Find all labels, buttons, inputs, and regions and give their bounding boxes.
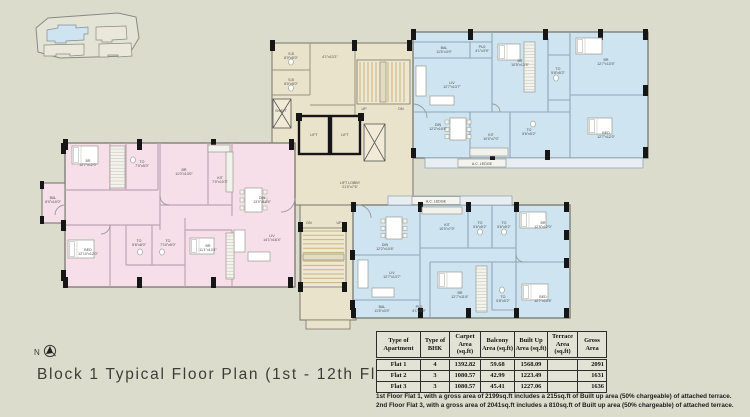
- wall-column: [411, 148, 416, 158]
- wardrobe-icon: [476, 266, 487, 312]
- room-label: LIFT: [310, 133, 318, 137]
- wall-column: [350, 300, 355, 310]
- dining-table-icon: [450, 118, 466, 140]
- toilet-fixture-icon: [554, 75, 559, 81]
- col-header: Type of Apartment: [377, 332, 421, 359]
- chair-icon: [467, 127, 471, 131]
- key-building-2: [96, 26, 127, 42]
- footnote-line: 2nd Floor Flat 3, with a gross area of 2…: [376, 401, 748, 410]
- wall-column: [288, 277, 293, 288]
- sofa-icon: [372, 288, 394, 297]
- wall-column: [564, 258, 569, 268]
- wardrobe-icon: [226, 233, 234, 279]
- toilet-fixture-icon: [531, 121, 536, 127]
- table-row: Flat 2 3 1080.57 42.99 1223.49 1631: [377, 371, 607, 382]
- wall-column: [351, 202, 356, 212]
- chair-icon: [403, 234, 407, 238]
- wall-column: [543, 29, 548, 40]
- wall-column: [289, 139, 294, 150]
- duct-shaft-left: [273, 99, 291, 128]
- toilet-fixture-icon: [500, 287, 505, 293]
- stair-top: [357, 60, 410, 104]
- chair-icon: [240, 190, 244, 194]
- toilet-fixture-icon: [131, 157, 136, 163]
- col-header: Terrace Area (sq.ft): [548, 332, 578, 359]
- sofa-icon: [430, 96, 454, 105]
- room-label: DN: [398, 107, 404, 111]
- ac-ledge-top: A.C. LEDGE: [425, 158, 643, 168]
- wall-column: [407, 40, 412, 51]
- wall-column: [514, 308, 519, 318]
- table-row: Flat 3 3 1080.57 45.41 1227.06 1636: [377, 382, 607, 393]
- room-label: LIFT LOBBY21'0"x7'6": [340, 181, 361, 189]
- wall-column: [270, 40, 275, 51]
- wall-column: [411, 29, 416, 40]
- table-header-row: Type of Apartment Type of BHK Carpet Are…: [377, 332, 607, 359]
- chair-icon: [445, 135, 449, 139]
- kitchen-counter-icon: [226, 152, 233, 192]
- wall-column: [564, 308, 569, 318]
- ac-ledge-bottom-label: A.C. LEDGE: [426, 199, 447, 203]
- stair-bottom: [301, 228, 346, 287]
- wall-column: [211, 277, 216, 288]
- room-label: DN: [306, 221, 312, 225]
- room-label: SHAFT: [275, 109, 288, 113]
- sofa-icon: [234, 230, 245, 252]
- ac-ledge-bottom: A.C. LEDGE: [388, 196, 512, 205]
- chair-icon: [403, 219, 407, 223]
- room-label: UP: [362, 107, 368, 111]
- wall-column: [40, 181, 44, 189]
- wall-column: [298, 282, 303, 292]
- bed-icon: [576, 38, 602, 54]
- chair-icon: [263, 206, 267, 210]
- wall-column: [61, 270, 66, 281]
- ac-ledge-top-label: A.C. LEDGE: [472, 162, 493, 166]
- footnote-line: 1st Floor Flat 1, with a gross area of 2…: [376, 392, 748, 401]
- room-label: UP: [337, 221, 343, 225]
- wall-column: [643, 29, 648, 40]
- sofa-icon: [358, 260, 368, 288]
- bed-icon: [498, 44, 520, 60]
- col-header: Built Up Area (sq.ft): [515, 332, 548, 359]
- wall-column: [40, 216, 44, 224]
- wall-column: [342, 222, 347, 232]
- room-label: LIFT: [341, 133, 349, 137]
- wall-column: [564, 202, 569, 212]
- wall-column: [358, 113, 364, 121]
- chair-icon: [467, 120, 471, 124]
- wall-column: [514, 202, 519, 212]
- chair-icon: [381, 226, 385, 230]
- wall-column: [468, 29, 473, 40]
- kitchen-counter-icon: [208, 145, 230, 152]
- dining-table-icon: [386, 217, 402, 239]
- chair-icon: [263, 190, 267, 194]
- sofa-icon: [248, 252, 270, 261]
- wall-column: [352, 40, 357, 51]
- wall-column: [298, 222, 303, 232]
- duct-shaft-right: [364, 124, 385, 161]
- wall-column: [350, 250, 355, 260]
- kitchen-counter-icon: [470, 148, 508, 156]
- wall-column: [643, 85, 648, 96]
- toilet-fixture-icon: [160, 249, 165, 255]
- wall-column: [137, 139, 142, 150]
- table-footnotes: 1st Floor Flat 1, with a gross area of 2…: [376, 392, 748, 411]
- chair-icon: [403, 226, 407, 230]
- wall-column: [137, 277, 142, 288]
- table-row: Flat 1 4 1392.82 59.68 1568.09 2091: [377, 359, 607, 371]
- wall-column: [61, 220, 66, 231]
- wall-column: [643, 147, 648, 158]
- wall-column: [466, 202, 471, 212]
- bed-icon: [438, 272, 462, 288]
- sofa-icon: [416, 66, 426, 96]
- chair-icon: [240, 198, 244, 202]
- key-building-3: [44, 44, 84, 56]
- core-porch: [306, 320, 350, 329]
- chair-icon: [240, 206, 244, 210]
- key-plan: [36, 13, 139, 58]
- wall-column: [545, 150, 550, 160]
- col-header: Type of BHK: [421, 332, 450, 359]
- chair-icon: [381, 234, 385, 238]
- room-label: 4'1"x13'1": [322, 55, 338, 59]
- chair-icon: [445, 120, 449, 124]
- kitchen-counter-icon: [422, 207, 462, 214]
- col-header: Carpet Area (sq.ft): [450, 332, 481, 359]
- chair-icon: [381, 219, 385, 223]
- key-building-4: [99, 43, 132, 57]
- north-label: N: [34, 348, 40, 357]
- wall-column: [466, 308, 471, 318]
- wall-column: [61, 143, 66, 154]
- toilet-fixture-icon: [502, 229, 507, 235]
- wall-column: [564, 230, 569, 240]
- page-title: Block 1 Typical Floor Plan (1st - 12th F…: [37, 366, 410, 384]
- north-arrow: N: [34, 344, 64, 360]
- toilet-fixture-icon: [138, 249, 143, 255]
- chair-icon: [467, 135, 471, 139]
- wall-column: [296, 113, 302, 121]
- compass-icon: [43, 344, 57, 358]
- col-header: Gross Area: [578, 332, 607, 359]
- floor-plan: A.C. LEDGE A.C. LEDGE BR12'7"x12'0"TO7'0…: [0, 0, 750, 417]
- area-statement-table: Type of Apartment Type of BHK Carpet Are…: [376, 331, 607, 393]
- toilet-fixture-icon: [478, 229, 483, 235]
- col-header: Balcony Area (sq.ft): [481, 332, 515, 359]
- wall-column: [342, 282, 347, 292]
